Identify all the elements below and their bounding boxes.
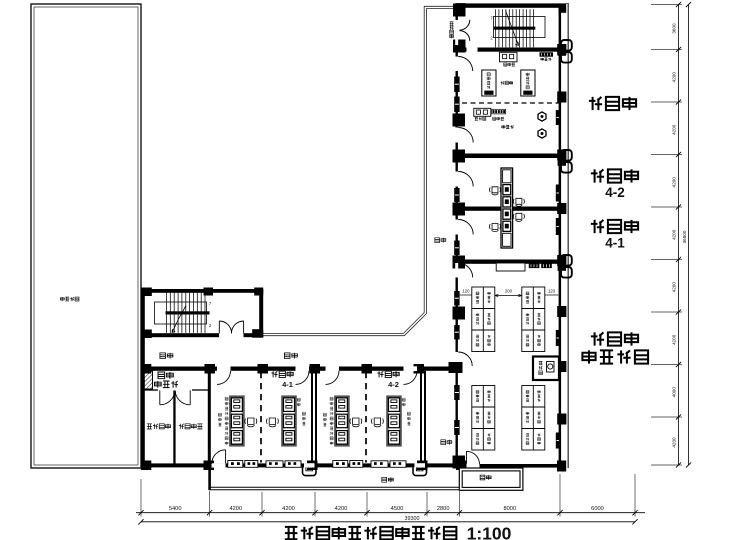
svg-text:4200: 4200 [672, 229, 677, 240]
svg-text:4200: 4200 [672, 334, 677, 345]
svg-text:120: 120 [462, 289, 470, 294]
svg-text:5400: 5400 [169, 506, 182, 512]
svg-text:4200: 4200 [672, 282, 677, 293]
svg-text:4500: 4500 [391, 506, 404, 512]
svg-text:1:100: 1:100 [467, 524, 512, 540]
svg-text:4200: 4200 [335, 506, 348, 512]
svg-text:4-2: 4-2 [388, 380, 399, 389]
svg-text:4200: 4200 [282, 506, 295, 512]
svg-text:4200: 4200 [672, 124, 677, 135]
svg-text:4-1: 4-1 [605, 236, 625, 251]
svg-text:4200: 4200 [229, 506, 242, 512]
svg-text:4200: 4200 [672, 177, 677, 188]
svg-text:6000: 6000 [591, 506, 604, 512]
svg-text:3600: 3600 [672, 23, 677, 34]
svg-text:200: 200 [505, 289, 513, 294]
svg-text:4-1: 4-1 [282, 380, 293, 389]
svg-text:2800: 2800 [437, 506, 450, 512]
svg-text:4200: 4200 [672, 437, 677, 448]
svg-text:36800: 36800 [682, 230, 687, 243]
svg-text:4-2: 4-2 [605, 185, 625, 200]
svg-text:8000: 8000 [503, 506, 516, 512]
svg-text:4200: 4200 [672, 72, 677, 83]
svg-text:120: 120 [548, 289, 556, 294]
svg-text:39300: 39300 [405, 516, 420, 522]
svg-text:4000: 4000 [672, 387, 677, 398]
